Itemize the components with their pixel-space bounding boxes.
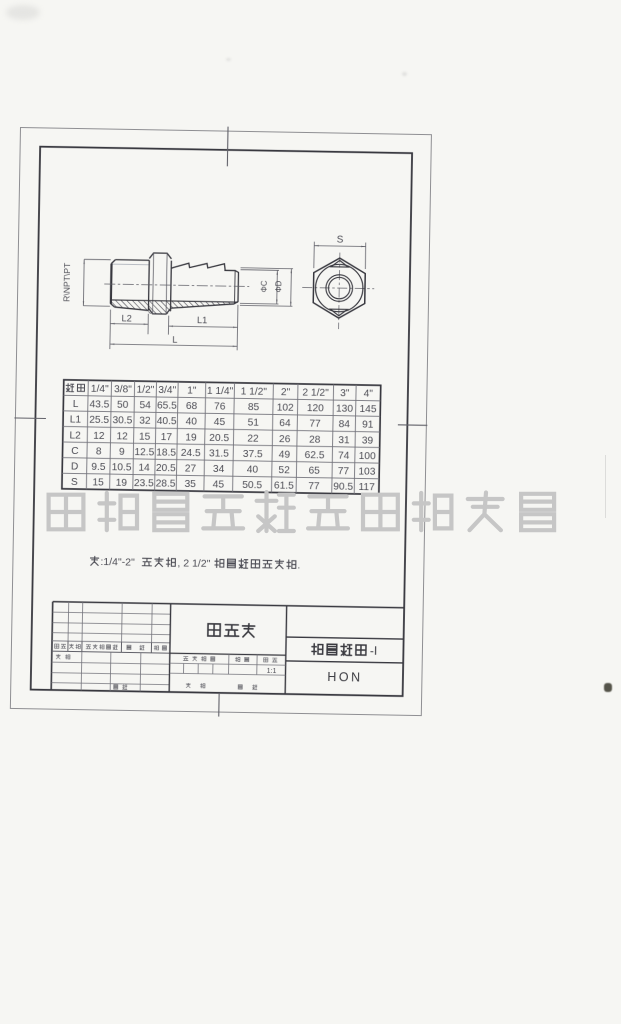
svg-text:15: 15	[139, 431, 151, 442]
svg-text:40: 40	[186, 417, 198, 428]
svg-text::1/4"-2": :1/4"-2"	[100, 556, 135, 569]
svg-text:40.5: 40.5	[157, 416, 177, 427]
svg-text:1/2": 1/2"	[136, 384, 154, 395]
svg-text:12.5: 12.5	[134, 447, 154, 458]
svg-text:68: 68	[186, 401, 198, 412]
svg-text:19: 19	[185, 432, 197, 443]
svg-text:77: 77	[309, 419, 321, 430]
svg-text:ΦD: ΦD	[274, 280, 283, 292]
svg-text:, 2 1/2": , 2 1/2"	[177, 558, 210, 571]
svg-text:3/8": 3/8"	[114, 384, 132, 395]
svg-text:-I: -I	[370, 644, 378, 658]
svg-text:62.5: 62.5	[305, 450, 325, 461]
svg-text:102: 102	[277, 403, 295, 414]
svg-text:L: L	[172, 334, 177, 344]
svg-text:.: .	[297, 560, 300, 572]
svg-text:31: 31	[338, 435, 350, 446]
svg-text:R\NPT\PT: R\NPT\PT	[62, 262, 73, 302]
svg-text:26: 26	[279, 434, 291, 445]
svg-text:30.5: 30.5	[112, 415, 132, 426]
svg-text:17: 17	[161, 432, 173, 443]
svg-text:3/4": 3/4"	[158, 385, 176, 396]
svg-text:12: 12	[116, 431, 128, 442]
svg-text:L2: L2	[121, 313, 131, 323]
svg-text:100: 100	[359, 451, 377, 462]
svg-text:2 1/2": 2 1/2"	[302, 387, 329, 398]
svg-text:76: 76	[214, 402, 226, 413]
svg-text:145: 145	[359, 404, 377, 415]
svg-text:24.5: 24.5	[181, 448, 201, 459]
svg-text:45: 45	[214, 417, 226, 428]
svg-text:L: L	[73, 399, 79, 410]
svg-text:9: 9	[119, 447, 125, 458]
svg-text:22: 22	[247, 433, 259, 444]
svg-text:18.5: 18.5	[156, 447, 176, 458]
svg-text:L1: L1	[70, 415, 82, 426]
svg-text:C: C	[71, 446, 79, 457]
svg-text:39: 39	[362, 435, 374, 446]
svg-text:91: 91	[362, 420, 374, 431]
svg-text:85: 85	[248, 402, 260, 413]
svg-text:2": 2"	[281, 387, 291, 398]
svg-text:20.5: 20.5	[209, 433, 229, 444]
svg-text:31.5: 31.5	[209, 448, 229, 459]
svg-text:8: 8	[96, 446, 102, 457]
svg-text:1:1: 1:1	[267, 668, 277, 675]
svg-text:ΦC: ΦC	[259, 280, 268, 292]
svg-text:32: 32	[139, 416, 151, 427]
svg-text:L2: L2	[69, 430, 81, 441]
svg-text:3": 3"	[340, 388, 350, 399]
svg-text:120: 120	[307, 403, 325, 414]
svg-text:1 1/4": 1 1/4"	[207, 386, 234, 397]
svg-text:4": 4"	[364, 388, 374, 399]
svg-text:74: 74	[338, 450, 350, 461]
svg-text:54: 54	[139, 400, 151, 411]
svg-text:130: 130	[336, 404, 354, 415]
svg-text:37.5: 37.5	[243, 449, 263, 460]
svg-text:43.5: 43.5	[89, 399, 109, 410]
svg-text:65.5: 65.5	[157, 401, 177, 412]
svg-text:50: 50	[117, 400, 129, 411]
svg-text:28: 28	[309, 434, 321, 445]
svg-text:12: 12	[93, 431, 105, 442]
svg-text:1 1/2": 1 1/2"	[241, 386, 268, 397]
svg-text:49: 49	[279, 449, 291, 460]
svg-text:1/4": 1/4"	[91, 384, 109, 395]
svg-text:1": 1"	[187, 385, 197, 396]
svg-text:84: 84	[338, 419, 350, 430]
svg-text:L1: L1	[197, 315, 207, 325]
svg-text:HON: HON	[327, 670, 363, 685]
svg-text:25.5: 25.5	[89, 415, 109, 426]
svg-text:64: 64	[279, 418, 291, 429]
svg-text:S: S	[337, 235, 344, 246]
svg-text:51: 51	[247, 418, 259, 429]
